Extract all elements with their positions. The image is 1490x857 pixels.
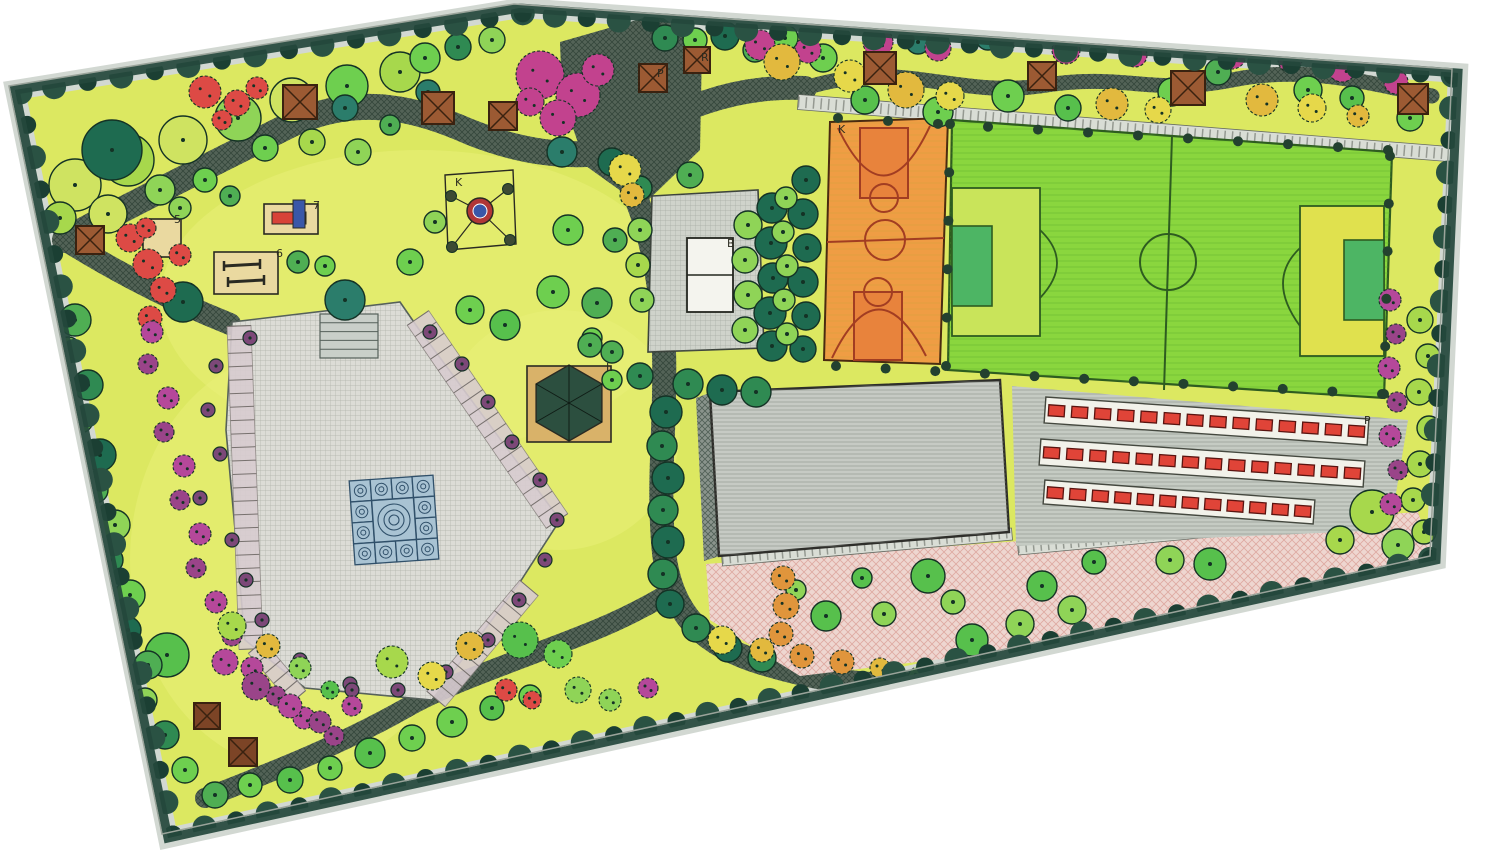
tree-center-dot [686, 382, 690, 386]
tree-center-dot [661, 572, 665, 576]
shrub-mass [565, 677, 591, 703]
shrub-dot [263, 642, 266, 645]
plaza-stairs [320, 314, 378, 358]
plan-letter-label: 5 [174, 213, 181, 226]
shrub-dot [1393, 505, 1396, 508]
tree-center-dot [468, 308, 472, 312]
tree-center-dot [801, 212, 805, 216]
shrub-dot [299, 714, 302, 717]
tree-center-dot [388, 123, 392, 127]
shrub-mass [150, 277, 176, 303]
tree-center-dot [720, 388, 724, 392]
shrub-dot [644, 685, 647, 688]
shrub-dot [295, 664, 298, 667]
shrub-dot [151, 266, 154, 269]
shrub-mass [771, 566, 795, 590]
shrub-mass [540, 100, 576, 136]
tree-center-dot [804, 178, 808, 182]
shrub-mass [157, 387, 179, 409]
shrub-dot [1360, 117, 1363, 120]
boundary-tree-dot [944, 167, 954, 177]
tree-center-dot [588, 343, 592, 347]
tree-center-dot [805, 246, 809, 250]
parked-car [1233, 417, 1250, 429]
tree-center-dot [769, 241, 773, 245]
shrub-dot [1400, 471, 1403, 474]
tree-center-dot [356, 150, 360, 154]
shrub-mass [212, 649, 238, 675]
shrub-dot [175, 251, 178, 254]
boundary-tree-dot [1381, 294, 1391, 304]
shrub-mass [456, 632, 484, 660]
tree-center-dot [794, 588, 798, 592]
shrub-dot [580, 692, 583, 695]
tree-center-dot [228, 194, 232, 198]
shrub-dot-center [555, 518, 558, 521]
boundary-tree-dot [941, 361, 951, 371]
shrub-dot [473, 648, 476, 651]
parked-car [1228, 459, 1245, 471]
shrub-mass [342, 696, 362, 716]
boundary-tree-dot [833, 113, 843, 123]
shrub-dot [1399, 403, 1402, 406]
tree-center-dot [183, 768, 187, 772]
shrub-dot-center [198, 496, 201, 499]
tree-center-dot [916, 40, 920, 44]
shrub-mass [189, 523, 211, 545]
shrub-dot [570, 89, 573, 92]
shrub-dot [650, 689, 653, 692]
shrub-mass [173, 455, 195, 477]
mosaic-tile [354, 542, 376, 564]
shrub-mass [502, 622, 538, 658]
boundary-tree-dot [1385, 151, 1395, 161]
shrub-mass [750, 638, 774, 662]
shrub-dot [211, 598, 214, 601]
shrub-dot [803, 46, 806, 49]
shrub-dot [224, 121, 227, 124]
shrub-dot [1392, 331, 1395, 334]
shrub-mass [1388, 460, 1408, 480]
shrub-dot [182, 256, 185, 259]
parked-car [1114, 492, 1131, 504]
shrub-dot-center [460, 362, 463, 365]
tree-center-dot [664, 410, 668, 414]
parked-car [1348, 425, 1365, 437]
tree-center-dot [203, 178, 207, 182]
tree-center-dot [73, 183, 77, 187]
tree-center-dot [785, 332, 789, 336]
park-master-plan-drawing: K765KBLPRP [0, 0, 1490, 857]
tree-center-dot [456, 45, 460, 49]
shrub-dot [247, 664, 250, 667]
shrub-mass [1379, 425, 1401, 447]
shrub-dot [259, 89, 262, 92]
shrub-dot-center [244, 578, 247, 581]
shrub-dot [148, 229, 151, 232]
tree-center-dot [882, 612, 886, 616]
tree-center-dot [801, 347, 805, 351]
tree-center-dot [1006, 94, 1010, 98]
shrub-dot-center [510, 440, 513, 443]
mosaic-tile [416, 538, 438, 560]
tree-center-dot [450, 720, 454, 724]
shrub-mass [1347, 105, 1369, 127]
shrub-dot-center [230, 538, 233, 541]
tree-center-dot [693, 38, 697, 42]
tree-center-dot [781, 230, 785, 234]
shrub-dot [501, 686, 504, 689]
shrub-mass [154, 422, 174, 442]
shrub-dot-center [428, 330, 431, 333]
mosaic-tile [415, 517, 437, 539]
tree-center-dot [666, 476, 670, 480]
shrub-dot [1315, 110, 1318, 113]
shrub-dot [195, 530, 198, 533]
tree-center-dot [1208, 562, 1212, 566]
parked-car [1140, 411, 1157, 423]
shrub-dot [166, 433, 169, 436]
tree-center-dot [770, 206, 774, 210]
shrub-dot [315, 718, 318, 721]
shrub-dot [1386, 500, 1389, 503]
parked-car [1047, 487, 1064, 499]
tree-center-dot [824, 614, 828, 618]
parked-car [1094, 408, 1111, 420]
shrub-dot [810, 52, 813, 55]
tree-center-dot [158, 188, 162, 192]
shrub-mass [620, 183, 644, 207]
shrub-dot [386, 657, 389, 660]
boundary-tree-dot [1383, 246, 1393, 256]
shrub-mass [1096, 88, 1128, 120]
shrub-dot [144, 361, 147, 364]
shrub-dot [285, 702, 288, 705]
shrub-mass [609, 154, 641, 186]
shrub-dot [561, 656, 564, 659]
shrub-mass [289, 657, 311, 679]
parked-car [1321, 466, 1338, 478]
parked-car [1252, 461, 1269, 473]
tree-center-dot [970, 638, 974, 642]
shrub-mass [599, 689, 621, 711]
shrub-dot [179, 462, 182, 465]
tree-center-dot [408, 260, 412, 264]
tree-center-dot [181, 138, 185, 142]
mosaic-tile [349, 480, 371, 502]
shrub-dot [160, 429, 163, 432]
carousel-seat [503, 184, 514, 195]
shrub-dot [944, 92, 947, 95]
shrub-dot [837, 658, 840, 661]
boundary-tree-dot [983, 122, 993, 132]
shrub-dot [331, 691, 334, 694]
shrub-mass [764, 44, 800, 80]
tree-center-dot [1417, 390, 1421, 394]
shrub-mass [141, 321, 163, 343]
shrub-mass [638, 678, 658, 698]
shrub-dot [170, 399, 173, 402]
shrub-mass [1298, 94, 1326, 122]
shrub-mass [830, 650, 854, 674]
tree-center-dot [165, 653, 169, 657]
goal-box-right [1344, 240, 1384, 320]
mosaic-tile [351, 501, 373, 523]
shrub-dot [218, 117, 221, 120]
shrub-dot [142, 225, 145, 228]
tree-center-dot [328, 766, 332, 770]
shrub-dot [232, 99, 235, 102]
shrub-dot [844, 664, 847, 667]
shrub-dot [192, 565, 195, 568]
shrub-dot [601, 73, 604, 76]
tree-center-dot [661, 508, 665, 512]
plan-letter-label: P [657, 67, 664, 80]
shrub-dot [133, 240, 136, 243]
tree-center-dot [801, 280, 805, 284]
tree-center-dot [1418, 318, 1422, 322]
shrub-dot [562, 121, 565, 124]
shrub-dot [583, 99, 586, 102]
parked-car [1294, 505, 1311, 517]
shrub-dot [619, 165, 622, 168]
tree-center-dot [368, 751, 372, 755]
plan-letter-label: B [727, 237, 735, 250]
shrub-dot [853, 79, 856, 82]
carousel-seat [447, 242, 458, 253]
gym-bar [228, 280, 264, 282]
tree-center-dot [666, 540, 670, 544]
tree-center-dot [804, 314, 808, 318]
shrub-dot [592, 65, 595, 68]
tree-center-dot [638, 228, 642, 232]
boundary-tree-dot [980, 369, 990, 379]
tree-center-dot [610, 378, 614, 382]
shrub-dot [239, 105, 242, 108]
shrub-dot [634, 197, 637, 200]
shrub-dot [1394, 467, 1397, 470]
parked-car [1136, 453, 1153, 465]
boundary-tree-dot [943, 264, 953, 274]
shrub-dot [797, 652, 800, 655]
shrub-dot [844, 71, 847, 74]
shrub-mass [544, 640, 572, 668]
tree-center-dot [1216, 70, 1220, 74]
boundary-tree-dot [943, 216, 953, 226]
shrub-dot [182, 501, 185, 504]
shrub-mass [246, 77, 268, 99]
shrub-dot [1256, 95, 1259, 98]
tree-center-dot [1418, 462, 1422, 466]
shrub-dot [786, 65, 789, 68]
parked-car [1298, 464, 1315, 476]
parked-car [1090, 450, 1107, 462]
tree-center-dot [595, 301, 599, 305]
boundary-tree-dot [1384, 199, 1394, 209]
shrub-dot [1265, 103, 1268, 106]
parked-car [1249, 502, 1266, 514]
shrub-dot [252, 84, 255, 87]
boundary-tree-dot [1129, 376, 1139, 386]
boundary-tree-dot [1278, 384, 1288, 394]
tree-center-dot [638, 374, 642, 378]
tree-center-dot [936, 110, 940, 114]
parked-car [1344, 467, 1361, 479]
parked-car [1210, 416, 1227, 428]
shrub-dot-center [350, 688, 353, 691]
bball-key-top [860, 128, 908, 198]
tree-center-dot [754, 390, 758, 394]
shrub-dot [508, 691, 511, 694]
shrub-dot [776, 630, 779, 633]
parked-car [1275, 462, 1292, 474]
shrub-dot [1385, 432, 1388, 435]
boundary-tree-dot [1178, 379, 1188, 389]
shrub-dot-center [396, 688, 399, 691]
plaza-mosaic [349, 475, 439, 565]
shrub-dot [1153, 106, 1156, 109]
tree-center-dot [1338, 538, 1342, 542]
tree-center-dot [821, 56, 825, 60]
tree-center-dot [310, 140, 314, 144]
tree-center-dot [1070, 608, 1074, 612]
shrub-dot [533, 701, 536, 704]
mosaic-tile [395, 539, 417, 561]
boundary-tree-dot [933, 119, 943, 129]
mosaic-tile [412, 475, 434, 497]
tree-center-dot [503, 323, 507, 327]
shrub-mass [1387, 392, 1407, 412]
boundary-tree-dot [1083, 128, 1093, 138]
shrub-dot [464, 642, 467, 645]
shrub-dot [208, 95, 211, 98]
shrub-mass [186, 558, 206, 578]
tree-center-dot [345, 84, 349, 88]
boundary-tree-dot [1183, 133, 1193, 143]
shrub-dot [757, 646, 760, 649]
tree-center-dot [663, 36, 667, 40]
shrub-dot [725, 642, 728, 645]
shrub-mass [189, 76, 221, 108]
shrub-dot [764, 652, 767, 655]
tree-center-dot [1066, 106, 1070, 110]
shrub-dot-center [214, 364, 217, 367]
tree-center-dot [951, 600, 955, 604]
shrub-dot [552, 650, 555, 653]
shrub-dot [322, 723, 325, 726]
parked-car [1187, 414, 1204, 426]
tree-center-dot [1370, 510, 1374, 514]
tree-center-dot [660, 444, 664, 448]
bball-key-bottom [854, 292, 902, 360]
shrub-dot [426, 672, 429, 675]
tree-center-dot [560, 150, 564, 154]
parked-car [1159, 455, 1176, 467]
shrub-dot [250, 682, 253, 685]
tree-center-dot [688, 173, 692, 177]
shrub-mass [1246, 84, 1278, 116]
shrub-dot [551, 113, 554, 116]
tree-center-dot [860, 576, 864, 580]
plan-letter-label: L [606, 361, 613, 374]
shrub-mass [256, 634, 280, 658]
boundary-tree-dot [1033, 125, 1043, 135]
carousel-seat [505, 235, 516, 246]
shrub-dot [531, 69, 534, 72]
shrub-mass [205, 591, 227, 613]
shrub-dot [272, 693, 275, 696]
shrub-dot [785, 580, 788, 583]
tree-center-dot [771, 276, 775, 280]
shrub-dot [573, 686, 576, 689]
shrub-dot [763, 47, 766, 50]
shrub-dot-center [538, 478, 541, 481]
shrub-dot [1106, 99, 1109, 102]
boundary-tree-dot [881, 364, 891, 374]
parked-car [1272, 503, 1289, 515]
parked-car [1204, 498, 1221, 510]
tree-center-dot [1411, 498, 1415, 502]
goal-box-left [952, 226, 992, 306]
seesaw-post [293, 200, 305, 228]
shrub-mass [769, 622, 793, 646]
tree-center-dot [746, 293, 750, 297]
shrub-dot [270, 648, 273, 651]
shrub-dot [513, 635, 516, 638]
tree-center-dot [1168, 558, 1172, 562]
parked-car [1256, 419, 1273, 431]
shrub-dot [330, 733, 333, 736]
boundary-tree-dot [831, 361, 841, 371]
boundary-tree-dot [1380, 341, 1390, 351]
tree-center-dot [1426, 354, 1430, 358]
tree-center-dot [296, 260, 300, 264]
parked-car [1279, 420, 1296, 432]
tree-center-dot [398, 70, 402, 74]
shrub-mass [1386, 324, 1406, 344]
shrub-dot [348, 703, 351, 706]
shrub-dot [783, 636, 786, 639]
shrub-mass [790, 644, 814, 668]
tree-center-dot [423, 56, 427, 60]
tree-center-dot [410, 736, 414, 740]
tree-center-dot [106, 212, 110, 216]
shrub-mass [169, 244, 191, 266]
plan-letter-label: K [838, 123, 846, 136]
shrub-dot [154, 333, 157, 336]
shrub-dot [524, 98, 527, 101]
shrub-dot [1393, 399, 1396, 402]
shrub-dot [754, 41, 757, 44]
parked-car [1048, 405, 1065, 417]
shrub-dot [202, 535, 205, 538]
tree-center-dot [113, 523, 117, 527]
shrub-mass [136, 218, 156, 238]
shrub-dot [612, 701, 615, 704]
parked-car [1182, 497, 1199, 509]
shrub-dot [124, 234, 127, 237]
parked-car [1325, 424, 1342, 436]
parked-car [1043, 447, 1060, 459]
shrub-mass [212, 110, 232, 130]
parked-car [1164, 413, 1181, 425]
tree-center-dot [566, 228, 570, 232]
tree-center-dot [1350, 96, 1354, 100]
shrub-dot [336, 737, 339, 740]
shrub-mass [1378, 357, 1400, 379]
tree-center-dot [746, 223, 750, 227]
tree-center-dot [694, 626, 698, 630]
